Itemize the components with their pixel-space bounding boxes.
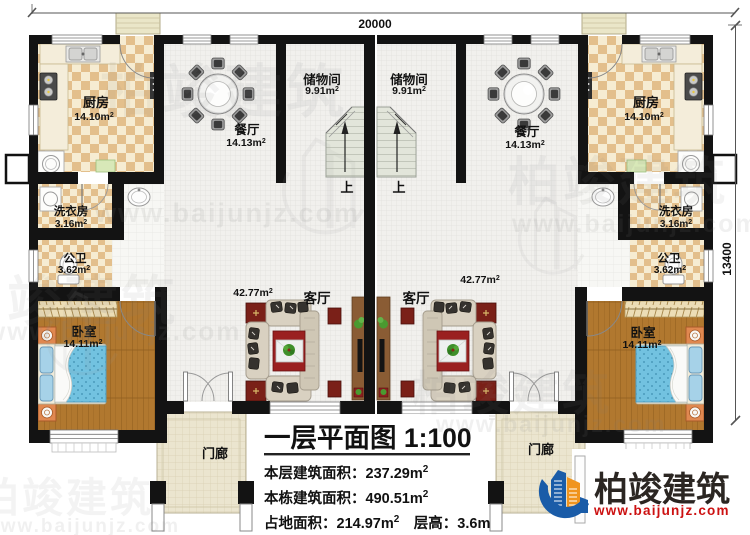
svg-text:9.91m2: 9.91m2 bbox=[392, 85, 426, 97]
svg-text:柏竣建筑: 柏竣建筑 bbox=[508, 154, 728, 212]
svg-text:柏竣建筑: 柏竣建筑 bbox=[100, 60, 348, 125]
svg-text:14.10m2: 14.10m2 bbox=[624, 111, 664, 123]
svg-text:www.baijunjz.com: www.baijunjz.com bbox=[511, 210, 750, 238]
svg-text:柏竣建筑: 柏竣建筑 bbox=[0, 475, 154, 521]
svg-text:门廊: 门廊 bbox=[202, 446, 228, 461]
svg-text:3.62m2: 3.62m2 bbox=[654, 265, 686, 276]
svg-text:www.baijunjz.com: www.baijunjz.com bbox=[94, 198, 360, 228]
svg-text:14.11m2: 14.11m2 bbox=[623, 339, 662, 351]
svg-text:厨房: 厨房 bbox=[633, 95, 659, 110]
svg-text:本层建筑面积：237.29m2: 本层建筑面积：237.29m2 bbox=[264, 464, 429, 482]
svg-text:www.baijunjz.com: www.baijunjz.com bbox=[593, 503, 730, 518]
svg-text:3.16m2: 3.16m2 bbox=[55, 219, 87, 230]
svg-text:42.77m2: 42.77m2 bbox=[233, 287, 273, 299]
svg-text:14.13m2: 14.13m2 bbox=[226, 137, 266, 149]
svg-text:卧室: 卧室 bbox=[630, 325, 656, 340]
svg-text:门廊: 门廊 bbox=[528, 442, 554, 457]
svg-text:www.baijunjz.com: www.baijunjz.com bbox=[435, 411, 667, 437]
svg-text:20000: 20000 bbox=[358, 17, 392, 31]
svg-text:13400: 13400 bbox=[720, 242, 734, 276]
svg-text:洗衣房: 洗衣房 bbox=[54, 204, 89, 218]
svg-text:42.77m2: 42.77m2 bbox=[460, 274, 500, 286]
svg-text:餐厅: 餐厅 bbox=[513, 124, 540, 139]
svg-text:客厅: 客厅 bbox=[402, 290, 430, 306]
svg-text:本栋建筑面积：490.51m2: 本栋建筑面积：490.51m2 bbox=[264, 489, 429, 507]
svg-text:客厅: 客厅 bbox=[303, 290, 331, 306]
svg-text:www.baijunjz.com: www.baijunjz.com bbox=[0, 316, 241, 346]
svg-text:公卫: 公卫 bbox=[64, 252, 87, 265]
svg-text:www.baijunjz.com: www.baijunjz.com bbox=[0, 516, 180, 535]
svg-text:公卫: 公卫 bbox=[658, 252, 681, 265]
svg-text:14.13m2: 14.13m2 bbox=[505, 139, 545, 151]
svg-text:上: 上 bbox=[392, 180, 405, 195]
svg-text:占地面积：214.97m2 层高：3.6m: 占地面积：214.97m2 层高：3.6m bbox=[264, 514, 490, 532]
